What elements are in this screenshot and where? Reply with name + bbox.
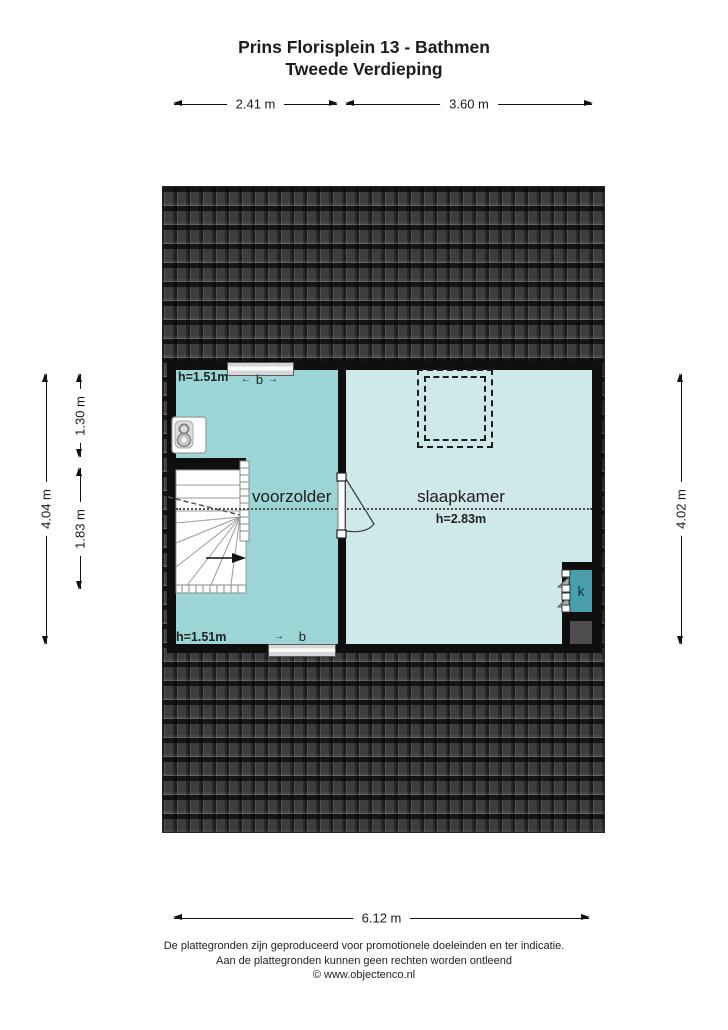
dimension-label: 3.60 m: [440, 97, 498, 112]
page-title-block: Prins Florisplein 13 - Bathmen Tweede Ve…: [0, 36, 728, 80]
bifold-door: [552, 566, 572, 614]
page-title: Prins Florisplein 13 - Bathmen: [0, 36, 728, 58]
room-label-closet: k: [571, 583, 591, 599]
dimension-left-outer: 4.04 m: [39, 373, 53, 645]
stairs: [168, 455, 254, 600]
footer-line3: © www.objectenco.nl: [0, 968, 728, 983]
dimension-left-inner-top: 1.30 m: [73, 373, 87, 458]
voorzolder-height-top: h=1.51m: [178, 370, 228, 384]
dimension-top-left: 2.41 m: [173, 97, 338, 111]
room-label-voorzolder: voorzolder: [252, 487, 331, 507]
arrow-up-icon: [42, 373, 48, 382]
page-subtitle: Tweede Verdieping: [0, 58, 728, 80]
wall-right: [592, 361, 602, 653]
slaapkamer-height: h=2.83m: [405, 512, 517, 526]
door-leaf: [338, 480, 345, 531]
dimension-label: 1.83 m: [73, 502, 88, 556]
arrow-right-icon: [581, 914, 590, 920]
wall-closet-divider: [570, 612, 592, 621]
arrow-left-icon: [173, 100, 182, 106]
arrow-right-icon: [329, 100, 338, 106]
wall-bottom: [167, 644, 602, 653]
arrow-down-icon: [76, 581, 82, 590]
wall-divider-upper: [338, 361, 346, 475]
roof-window-dashed-inner: [424, 376, 486, 441]
arrow-left-icon: [173, 914, 182, 920]
arrow-up-icon: [677, 373, 683, 382]
dimension-label: 6.12 m: [353, 911, 411, 926]
stair-area: [176, 470, 246, 592]
footer-line2: Aan de plattegronden kunnen geen rechten…: [0, 954, 728, 969]
ceiling-height-dotted-line: [176, 508, 592, 510]
dimension-label: 4.02 m: [674, 482, 689, 536]
arrow-down-icon: [42, 636, 48, 645]
shaft: [570, 621, 592, 644]
window-bottom: [268, 644, 336, 657]
dimension-bottom: 6.12 m: [173, 911, 590, 925]
footer-disclaimer: De plattegronden zijn geproduceerd voor …: [0, 939, 728, 983]
arrow-right-icon: →: [274, 631, 284, 643]
footer-line1: De plattegronden zijn geproduceerd voor …: [0, 939, 728, 954]
arrow-up-icon: [76, 373, 82, 382]
dimension-left-inner-bottom: 1.83 m: [73, 467, 87, 590]
dimension-label: 1.30 m: [73, 389, 88, 443]
window-mark-top: ← b →: [241, 373, 278, 386]
dimension-label: 4.04 m: [39, 482, 54, 536]
dimension-top-right: 3.60 m: [345, 97, 593, 111]
window-mark-label: b: [256, 373, 263, 386]
arrow-right-icon: →: [268, 374, 278, 386]
boiler-icon: [170, 414, 212, 456]
arrow-down-icon: [677, 636, 683, 645]
stair-banister: [240, 461, 249, 541]
voorzolder-height-bottom: h=1.51m: [176, 630, 226, 644]
arrow-left-icon: ←: [241, 374, 251, 386]
window-mark-bottom: → b: [274, 630, 306, 643]
room-label-slaapkamer: slaapkamer: [405, 487, 517, 507]
wall-stairwell: [170, 458, 246, 470]
stair-rail-bottom: [176, 585, 246, 593]
dimension-label: 2.41 m: [227, 97, 285, 112]
arrow-down-icon: [76, 449, 82, 458]
door: [332, 468, 380, 542]
wall-divider-lower: [338, 537, 346, 653]
dimension-right: 4.02 m: [674, 373, 688, 645]
arrow-left-icon: [345, 100, 354, 106]
arrow-right-icon: [584, 100, 593, 106]
floorplan-page: Prins Florisplein 13 - Bathmen Tweede Ve…: [0, 0, 728, 1030]
window-mark-label: b: [299, 630, 306, 643]
door-swing-arc: [346, 479, 374, 532]
arrow-up-icon: [76, 467, 82, 476]
